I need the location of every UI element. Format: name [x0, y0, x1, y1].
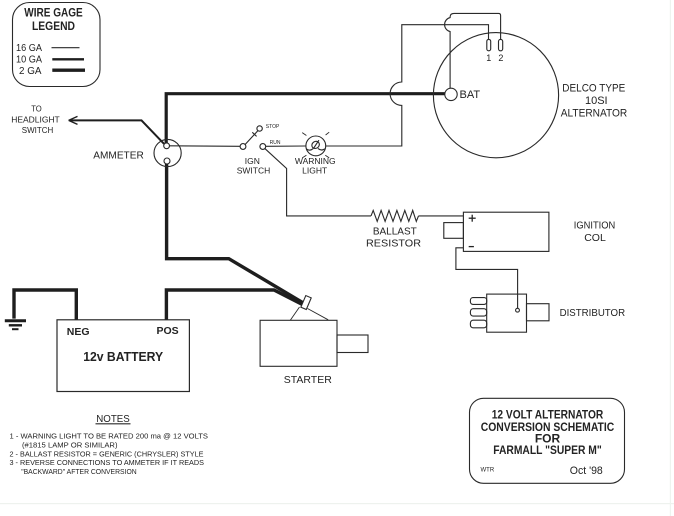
svg-text:RUN: RUN	[270, 140, 281, 146]
svg-text:10SI: 10SI	[585, 95, 608, 107]
svg-text:AMMETER: AMMETER	[93, 149, 144, 161]
svg-text:FARMALL "SUPER M": FARMALL "SUPER M"	[493, 443, 602, 457]
svg-text:ALTERNATOR: ALTERNATOR	[561, 107, 628, 119]
svg-text:NOTES: NOTES	[96, 413, 130, 425]
svg-text:WTR: WTR	[481, 468, 495, 474]
svg-text:1: 1	[486, 53, 491, 63]
svg-text:SWITCH: SWITCH	[22, 126, 54, 135]
svg-text:HEADLIGHT: HEADLIGHT	[11, 116, 60, 125]
svg-text:Oct '98: Oct '98	[570, 465, 603, 477]
svg-text:2 GA: 2 GA	[19, 65, 42, 77]
svg-text:BALLAST: BALLAST	[373, 227, 417, 238]
svg-text:SWITCH: SWITCH	[237, 166, 271, 176]
svg-text:3 - REVERSE CONNECTIONS TO AMM: 3 - REVERSE CONNECTIONS TO AMMETER IF IT…	[10, 458, 205, 467]
svg-text:RESISTOR: RESISTOR	[366, 239, 421, 250]
svg-text:10 GA: 10 GA	[16, 54, 42, 66]
svg-text:12v BATTERY: 12v BATTERY	[83, 349, 163, 364]
svg-text:IGNITION: IGNITION	[574, 219, 616, 231]
svg-text:(#1815 LAMP OR SIMILAR): (#1815 LAMP OR SIMILAR)	[22, 440, 118, 449]
svg-text:1 - WARNING LIGHT TO BE RATED: 1 - WARNING LIGHT TO BE RATED 200 ma @ 1…	[10, 432, 209, 441]
svg-text:POS: POS	[157, 325, 179, 337]
svg-text:COL: COL	[584, 232, 606, 244]
svg-text:BAT: BAT	[460, 89, 481, 101]
svg-text:2: 2	[498, 53, 503, 63]
svg-text:IGN: IGN	[245, 156, 260, 166]
svg-text:STOP: STOP	[266, 124, 280, 130]
svg-text:WIRE GAGE: WIRE GAGE	[24, 8, 83, 20]
svg-text:DELCO TYPE: DELCO TYPE	[562, 82, 625, 94]
svg-text:"BACKWARD" AFTER CONVERSION: "BACKWARD" AFTER CONVERSION	[21, 467, 137, 476]
svg-text:2 - BALLAST RESISTOR = GENERIC: 2 - BALLAST RESISTOR = GENERIC (CHRYSLER…	[10, 449, 204, 458]
svg-text:STARTER: STARTER	[284, 374, 332, 386]
svg-text:LIGHT: LIGHT	[302, 166, 327, 176]
svg-text:NEG: NEG	[67, 326, 90, 338]
svg-text:DISTRIBUTOR: DISTRIBUTOR	[560, 307, 626, 319]
svg-text:TO: TO	[31, 105, 42, 114]
svg-text:16 GA: 16 GA	[16, 42, 42, 54]
svg-text:LEGEND: LEGEND	[32, 21, 75, 33]
